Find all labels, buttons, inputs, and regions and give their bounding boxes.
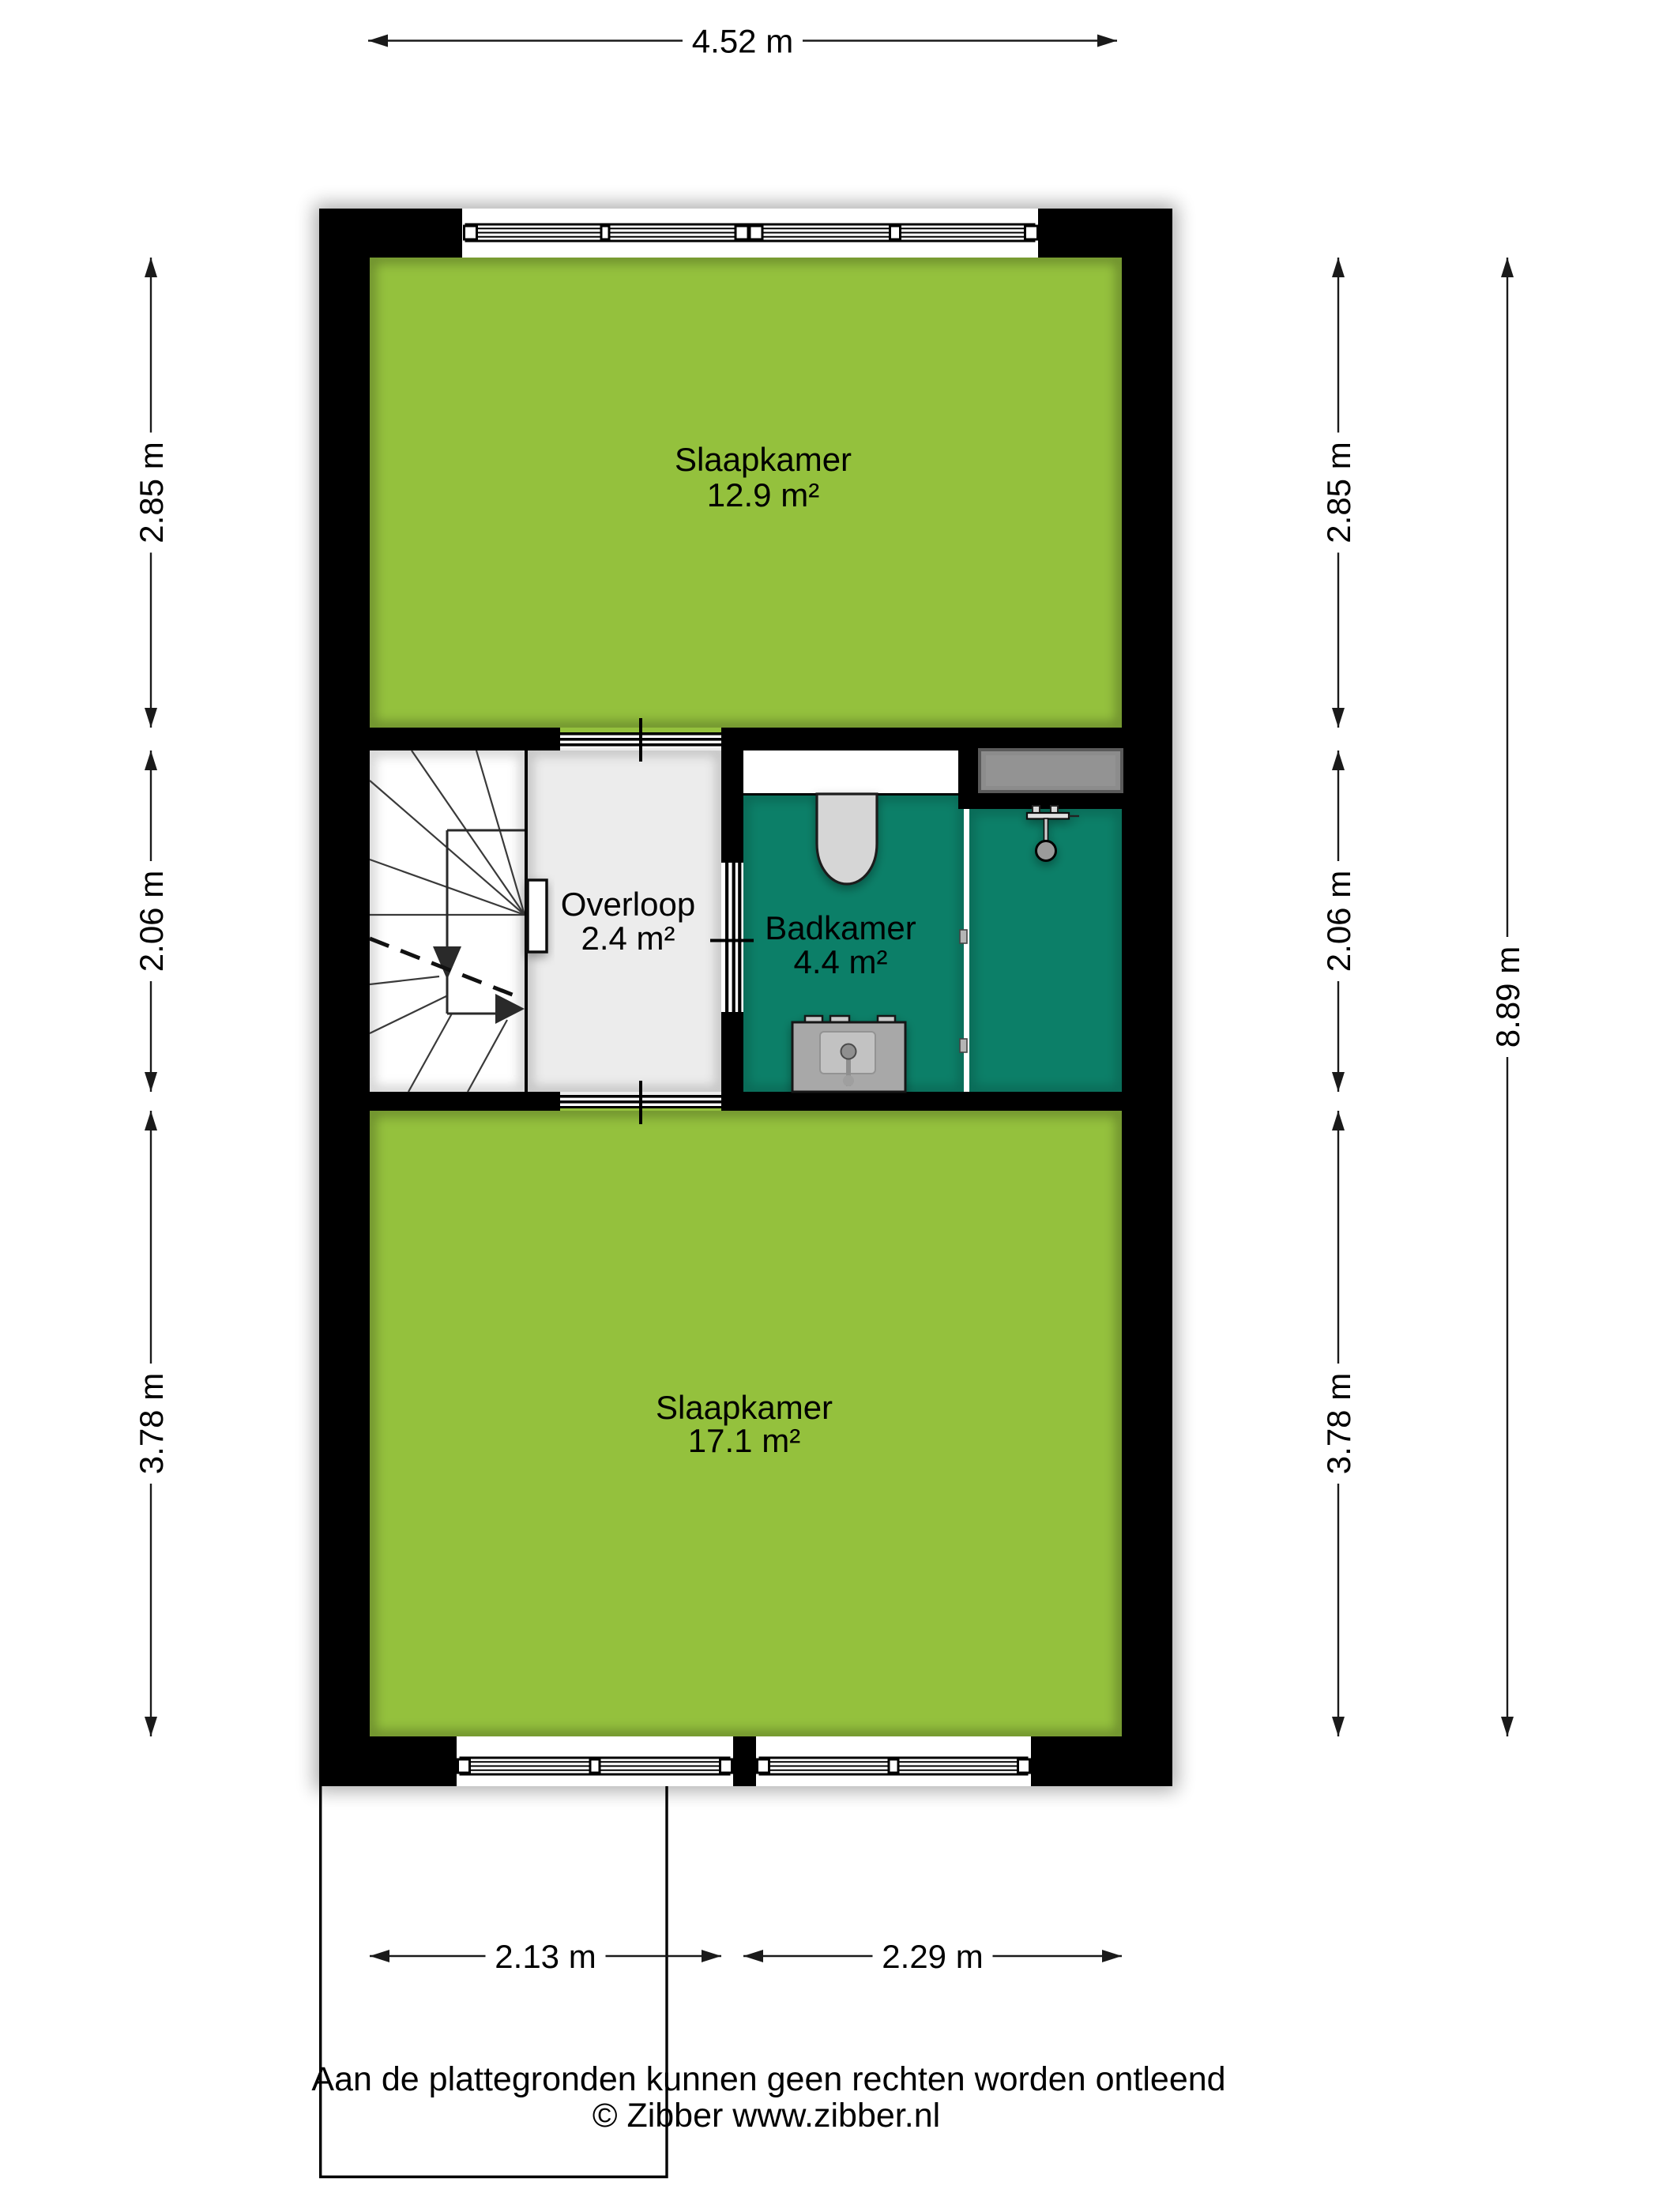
svg-text:Slaapkamer: Slaapkamer bbox=[656, 1389, 833, 1426]
svg-text:Overloop: Overloop bbox=[561, 886, 695, 923]
svg-text:3.78 m: 3.78 m bbox=[1320, 1373, 1357, 1474]
svg-text:2.85 m: 2.85 m bbox=[133, 442, 170, 543]
svg-text:3.78 m: 3.78 m bbox=[133, 1373, 170, 1474]
svg-text:2.06 m: 2.06 m bbox=[1320, 871, 1357, 972]
svg-text:2.29 m: 2.29 m bbox=[882, 1938, 983, 1975]
svg-text:Slaapkamer: Slaapkamer bbox=[675, 441, 852, 478]
svg-text:2.13 m: 2.13 m bbox=[495, 1938, 596, 1975]
svg-text:4.52 m: 4.52 m bbox=[692, 23, 793, 60]
svg-text:4.4 m²: 4.4 m² bbox=[793, 943, 887, 980]
svg-text:2.06 m: 2.06 m bbox=[133, 871, 170, 972]
svg-text:8.89 m: 8.89 m bbox=[1489, 946, 1526, 1048]
svg-text:Badkamer: Badkamer bbox=[765, 909, 916, 946]
svg-text:Aan de plattegronden kunnen ge: Aan de plattegronden kunnen geen rechten… bbox=[311, 2060, 1225, 2098]
svg-text:2.4 m²: 2.4 m² bbox=[581, 920, 675, 957]
svg-text:2.85 m: 2.85 m bbox=[1320, 442, 1357, 543]
svg-text:17.1 m²: 17.1 m² bbox=[688, 1422, 800, 1459]
svg-text:© Zibber www.zibber.nl: © Zibber www.zibber.nl bbox=[592, 2097, 940, 2135]
svg-text:12.9 m²: 12.9 m² bbox=[707, 476, 819, 513]
